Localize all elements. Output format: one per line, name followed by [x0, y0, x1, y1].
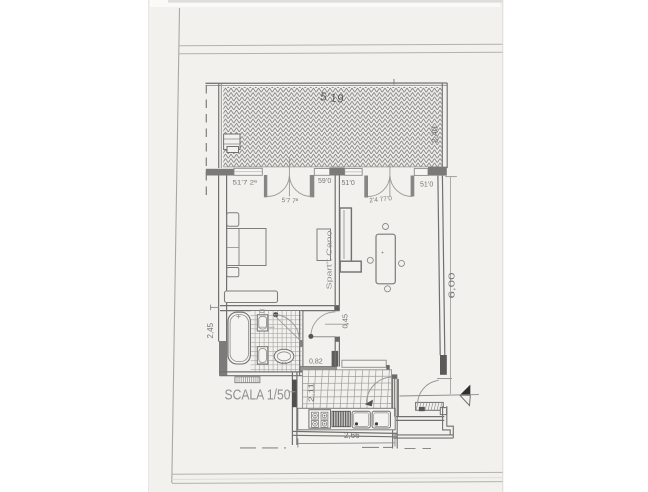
svg-text:6,00: 6,00	[447, 272, 457, 298]
svg-text:5’7 7ª: 5’7 7ª	[281, 197, 299, 205]
svg-text:2,66: 2,66	[344, 431, 360, 440]
svg-text:2,40: 2,40	[430, 126, 440, 143]
svg-text:2,11: 2,11	[307, 383, 316, 402]
svg-text:51’0: 51’0	[342, 180, 355, 187]
svg-text:2,45: 2,45	[206, 322, 215, 338]
svg-text:Spart’t Cano: Spart’t Cano	[325, 231, 334, 290]
svg-text:51’7 2ª: 51’7 2ª	[233, 180, 258, 187]
svg-text:51’0: 51’0	[420, 182, 433, 189]
svg-text:0,82: 0,82	[309, 359, 323, 366]
svg-text:59’0: 59’0	[318, 178, 331, 185]
svg-text:SCALA 1/50: SCALA 1/50	[225, 388, 291, 404]
svg-text:0,45: 0,45	[341, 314, 350, 329]
